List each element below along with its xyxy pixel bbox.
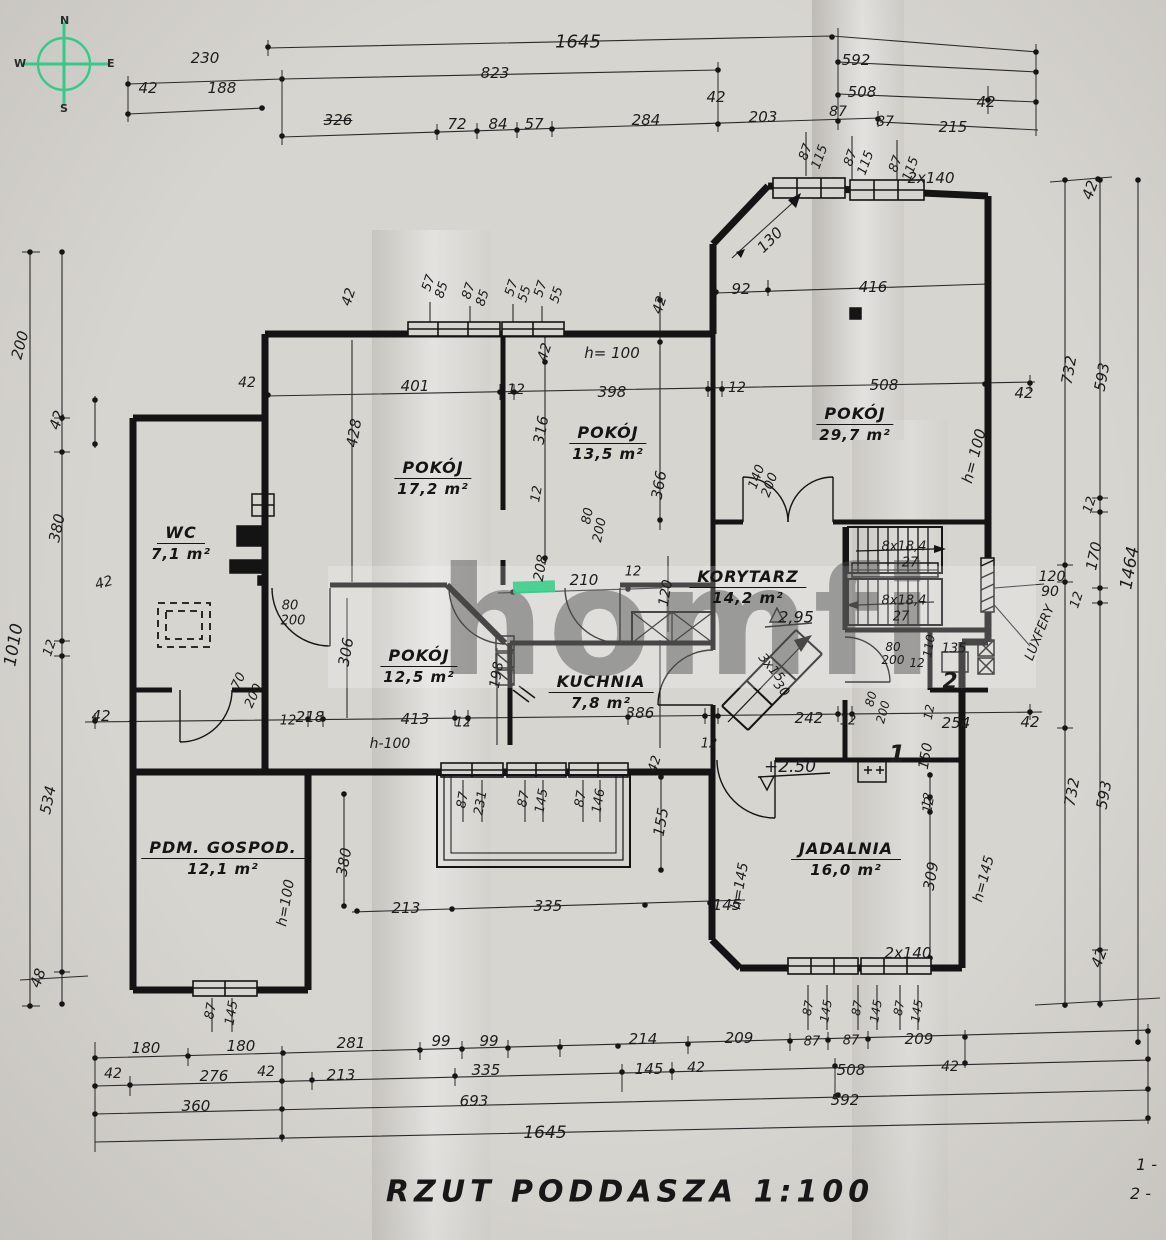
dimension-label: 92 bbox=[731, 280, 750, 298]
dimension-label: 12 bbox=[455, 716, 472, 731]
room-name: POKÓJ bbox=[394, 458, 471, 479]
room-label: KUCHNIA7,8 m² bbox=[549, 672, 654, 712]
compass-w: W bbox=[14, 57, 26, 70]
dimension-label: 87 bbox=[876, 114, 894, 130]
dimension-label: 12 bbox=[280, 714, 297, 729]
dimension-label: 208 bbox=[531, 553, 551, 582]
legend-item-1: 1 - bbox=[1136, 1155, 1157, 1174]
dimension-label: 42 bbox=[257, 1064, 275, 1080]
dimension-label: 413 bbox=[401, 710, 430, 728]
dimension-label: 42 bbox=[706, 88, 725, 106]
dimension-label: 145 bbox=[635, 1060, 664, 1078]
dimension-label: 145 bbox=[222, 999, 241, 1026]
blueprint-scan: homfi 2304218832616458234272845728420359… bbox=[0, 0, 1166, 1240]
dimension-label: 12 bbox=[840, 714, 857, 729]
dimension-label: 12 bbox=[507, 382, 525, 398]
room-name: JADALNIA bbox=[791, 839, 901, 860]
dimension-label: 87 bbox=[572, 790, 590, 809]
dimension-label: 360 bbox=[182, 1097, 211, 1115]
dimension-label: 42 bbox=[339, 286, 360, 308]
room-area: 17,2 m² bbox=[397, 479, 468, 498]
dimension-label: 145 bbox=[532, 787, 551, 814]
dimension-label: 218 bbox=[296, 708, 325, 726]
room-area: 12,1 m² bbox=[187, 859, 258, 878]
dimension-label: 508 bbox=[848, 83, 877, 101]
dimension-label: 1645 bbox=[555, 32, 601, 53]
dimension-label: 12 bbox=[921, 703, 937, 720]
dimension-label: 42 bbox=[941, 1059, 959, 1075]
level-mark: 2,95 bbox=[778, 608, 814, 627]
dimension-label: 188 bbox=[208, 79, 237, 97]
dimension-label: 1645 bbox=[523, 1123, 566, 1143]
dimension-label: 209 bbox=[725, 1029, 754, 1047]
room-label: POKÓJ12,5 m² bbox=[380, 646, 457, 686]
dimension-label: 12 bbox=[528, 485, 546, 504]
dimension-label: 55 bbox=[547, 285, 566, 305]
dimension-label: 42 bbox=[1087, 946, 1110, 970]
dimension-label: 366 bbox=[648, 469, 671, 500]
dimension-label: 2x140 bbox=[907, 169, 954, 187]
room-label: KORYTARZ14,2 m² bbox=[689, 567, 806, 607]
dimension-label: 57 bbox=[524, 115, 543, 133]
dimension-label: 85 bbox=[432, 280, 451, 300]
compass-n: N bbox=[60, 14, 69, 27]
dimension-label: 87 bbox=[454, 791, 472, 810]
dimension-label: 231 bbox=[471, 789, 490, 816]
legend-item-2: 2 - bbox=[1130, 1184, 1151, 1203]
room-number: 1 bbox=[889, 740, 906, 768]
dimension-label: 200 bbox=[242, 682, 266, 711]
dimension-label: 401 bbox=[401, 377, 430, 395]
room-name: POKÓJ bbox=[380, 646, 457, 667]
dimension-label: 326 bbox=[324, 111, 353, 129]
dimension-label: 80 bbox=[282, 599, 299, 614]
dimension-label: 2x140 bbox=[884, 944, 931, 962]
dimension-label: 87 bbox=[829, 104, 847, 120]
dimension-label: 428 bbox=[343, 417, 366, 448]
dimension-label: 254 bbox=[942, 714, 971, 732]
dimension-label: 209 bbox=[905, 1030, 934, 1048]
dimension-label: 592 bbox=[842, 51, 871, 69]
drawing-title: RZUT PODDASZA 1:100 bbox=[386, 1175, 874, 1210]
dimension-label: 145 bbox=[817, 999, 835, 1024]
dimension-label: 99 bbox=[479, 1032, 498, 1050]
dimension-label: 693 bbox=[460, 1092, 489, 1110]
dimension-label: 1464 bbox=[1116, 545, 1143, 591]
dimension-label: 87 bbox=[800, 999, 816, 1016]
stairs-label: 27 bbox=[902, 556, 919, 571]
dimension-label: 42 bbox=[687, 1060, 705, 1076]
dimension-label: 380 bbox=[45, 512, 69, 544]
dimension-label: 87 bbox=[202, 1002, 220, 1021]
dimension-label: 145 bbox=[908, 999, 926, 1024]
room-name: POKÓJ bbox=[569, 423, 646, 444]
dimension-label: 200 bbox=[8, 329, 33, 361]
dimension-label: 42 bbox=[104, 1066, 122, 1082]
dimension-label: 42 bbox=[1078, 178, 1101, 202]
dimension-label: 12 bbox=[701, 737, 718, 752]
dimension-label: 42 bbox=[1014, 384, 1033, 402]
dimension-label: h= 100 bbox=[584, 344, 639, 362]
dimension-label: 276 bbox=[200, 1067, 229, 1085]
dimension-label: 398 bbox=[598, 383, 627, 401]
room-area: 7,1 m² bbox=[151, 544, 211, 563]
room-area: 12,5 m² bbox=[383, 667, 454, 686]
dimension-label: 12 bbox=[909, 656, 924, 670]
room-name: KUCHNIA bbox=[549, 672, 654, 693]
compass-rose: N W E S bbox=[14, 12, 114, 112]
dimension-label: 200 bbox=[281, 614, 306, 629]
dimension-label: 180 bbox=[227, 1037, 256, 1055]
dimension-label: h=145 bbox=[970, 854, 998, 904]
dimension-label: 215 bbox=[939, 118, 968, 136]
dimension-label: 87 bbox=[515, 790, 533, 809]
dimension-label: 12 bbox=[1067, 590, 1086, 610]
dimension-label: h-100 bbox=[370, 736, 411, 752]
level-mark: +2.50 bbox=[764, 757, 816, 777]
dimension-label: 42 bbox=[93, 573, 114, 593]
dimension-label: 203 bbox=[749, 108, 778, 126]
dimension-label: 42 bbox=[138, 79, 157, 97]
dimension-label: 309 bbox=[920, 860, 943, 891]
dimension-label: 242 bbox=[795, 709, 824, 727]
compass-icon bbox=[14, 12, 114, 112]
dimension-label: 84 bbox=[488, 115, 507, 133]
stairs-label: 8x18,4 bbox=[882, 594, 927, 609]
dimension-label: 316 bbox=[530, 414, 553, 445]
room-label: POKÓJ13,5 m² bbox=[569, 423, 646, 463]
dimension-label: 380 bbox=[333, 846, 356, 877]
dimension-label: h=100 bbox=[274, 878, 298, 927]
dimension-label: 281 bbox=[337, 1034, 366, 1052]
dimension-label: 12 bbox=[40, 638, 59, 658]
room-name: WC bbox=[157, 523, 204, 544]
dimension-label: 592 bbox=[831, 1091, 860, 1109]
dimension-label: 72 bbox=[447, 115, 466, 133]
dimension-label: 593 bbox=[1091, 361, 1114, 392]
room-area: 14,2 m² bbox=[712, 588, 783, 607]
dimension-label: 12 bbox=[625, 565, 642, 580]
dimension-label: 80 bbox=[885, 640, 900, 654]
dimension-label: 90 bbox=[1041, 584, 1059, 600]
dimension-label: h=145 bbox=[728, 861, 752, 910]
dimension-label: 135 bbox=[942, 642, 967, 657]
dimension-label: 534 bbox=[36, 784, 60, 816]
dimension-label: 120 bbox=[656, 578, 676, 607]
room-label: PDM. GOSPOD.12,1 m² bbox=[141, 838, 305, 878]
dimension-label: 42 bbox=[645, 754, 664, 774]
room-area: 13,5 m² bbox=[572, 444, 643, 463]
dimension-label: 42 bbox=[1020, 713, 1039, 731]
annotation-layer: 2304218832616458234272845728420359250842… bbox=[0, 0, 1166, 1240]
glass-blocks-label: LUXFERY bbox=[1022, 603, 1058, 663]
dimension-label: 823 bbox=[481, 64, 510, 82]
dimension-label: 146 bbox=[589, 787, 608, 814]
dimension-label: 508 bbox=[870, 376, 899, 394]
dimension-label: 150 bbox=[916, 741, 936, 770]
dimension-label: 99 bbox=[431, 1032, 450, 1050]
dimension-label: 12 bbox=[728, 380, 746, 396]
dimension-label: 284 bbox=[632, 111, 661, 129]
room-number: 2 bbox=[942, 670, 957, 695]
dimension-label: 732 bbox=[1058, 354, 1081, 385]
dimension-label: 42 bbox=[45, 408, 68, 432]
dimension-label: 48 bbox=[26, 966, 49, 990]
dimension-label: 180 bbox=[132, 1039, 161, 1057]
dimension-label: 145 bbox=[867, 999, 885, 1024]
dimension-label: 170 bbox=[1082, 540, 1106, 572]
dimension-label: 70 bbox=[229, 670, 250, 691]
room-area: 29,7 m² bbox=[819, 425, 890, 444]
room-name: KORYTARZ bbox=[689, 567, 806, 588]
room-label: POKÓJ29,7 m² bbox=[816, 404, 893, 444]
dimension-label: 87 bbox=[843, 1034, 860, 1049]
dimension-label: 130 bbox=[754, 224, 787, 257]
room-label: JADALNIA16,0 m² bbox=[791, 839, 901, 879]
dimension-label: 12 bbox=[1080, 495, 1099, 515]
dimension-label: 198 bbox=[487, 660, 507, 689]
dimension-label: 213 bbox=[327, 1066, 356, 1084]
room-name: PDM. GOSPOD. bbox=[141, 838, 305, 859]
dimension-label: 87 bbox=[891, 999, 907, 1016]
dimension-label: 416 bbox=[859, 278, 888, 296]
dimension-label: 230 bbox=[191, 49, 220, 67]
dimension-label: 213 bbox=[392, 899, 421, 917]
dimension-label: 42 bbox=[91, 707, 110, 725]
dimension-label: 732 bbox=[1061, 776, 1084, 807]
room-name: POKÓJ bbox=[816, 404, 893, 425]
room-label: WC7,1 m² bbox=[151, 523, 211, 563]
dimension-label: 42 bbox=[238, 375, 256, 391]
stairs-label: 8x18,4 bbox=[882, 540, 927, 555]
dimension-label: 200 bbox=[882, 653, 905, 667]
stairs-label: 27 bbox=[893, 610, 910, 625]
dimension-label: 508 bbox=[837, 1061, 866, 1079]
dimension-label: 42 bbox=[650, 294, 671, 316]
dimension-label: 155 bbox=[650, 806, 673, 837]
room-label: POKÓJ17,2 m² bbox=[394, 458, 471, 498]
dimension-label: 214 bbox=[629, 1030, 658, 1048]
dimension-label: 12 bbox=[920, 796, 938, 815]
compass-s: S bbox=[60, 102, 68, 115]
dimension-label: h= 100 bbox=[958, 427, 990, 485]
dimension-label: 87 bbox=[804, 1035, 821, 1050]
dimension-label: 42 bbox=[976, 93, 995, 111]
dimension-label: 335 bbox=[534, 897, 563, 915]
dimension-label: 1010 bbox=[0, 622, 27, 668]
dimension-label: 335 bbox=[472, 1061, 501, 1079]
dimension-label: 210 bbox=[570, 571, 599, 589]
dimension-label: 110 bbox=[920, 634, 938, 659]
dimension-label: 87 bbox=[849, 999, 865, 1016]
dimension-label: 120 bbox=[1039, 569, 1066, 585]
compass-e: E bbox=[107, 57, 115, 70]
room-area: 16,0 m² bbox=[810, 860, 881, 879]
room-area: 7,8 m² bbox=[571, 693, 631, 712]
dimension-label: 593 bbox=[1093, 779, 1116, 810]
dimension-label: 85 bbox=[473, 288, 492, 308]
dimension-label: 306 bbox=[335, 636, 358, 667]
dimension-label: 42 bbox=[535, 341, 556, 363]
